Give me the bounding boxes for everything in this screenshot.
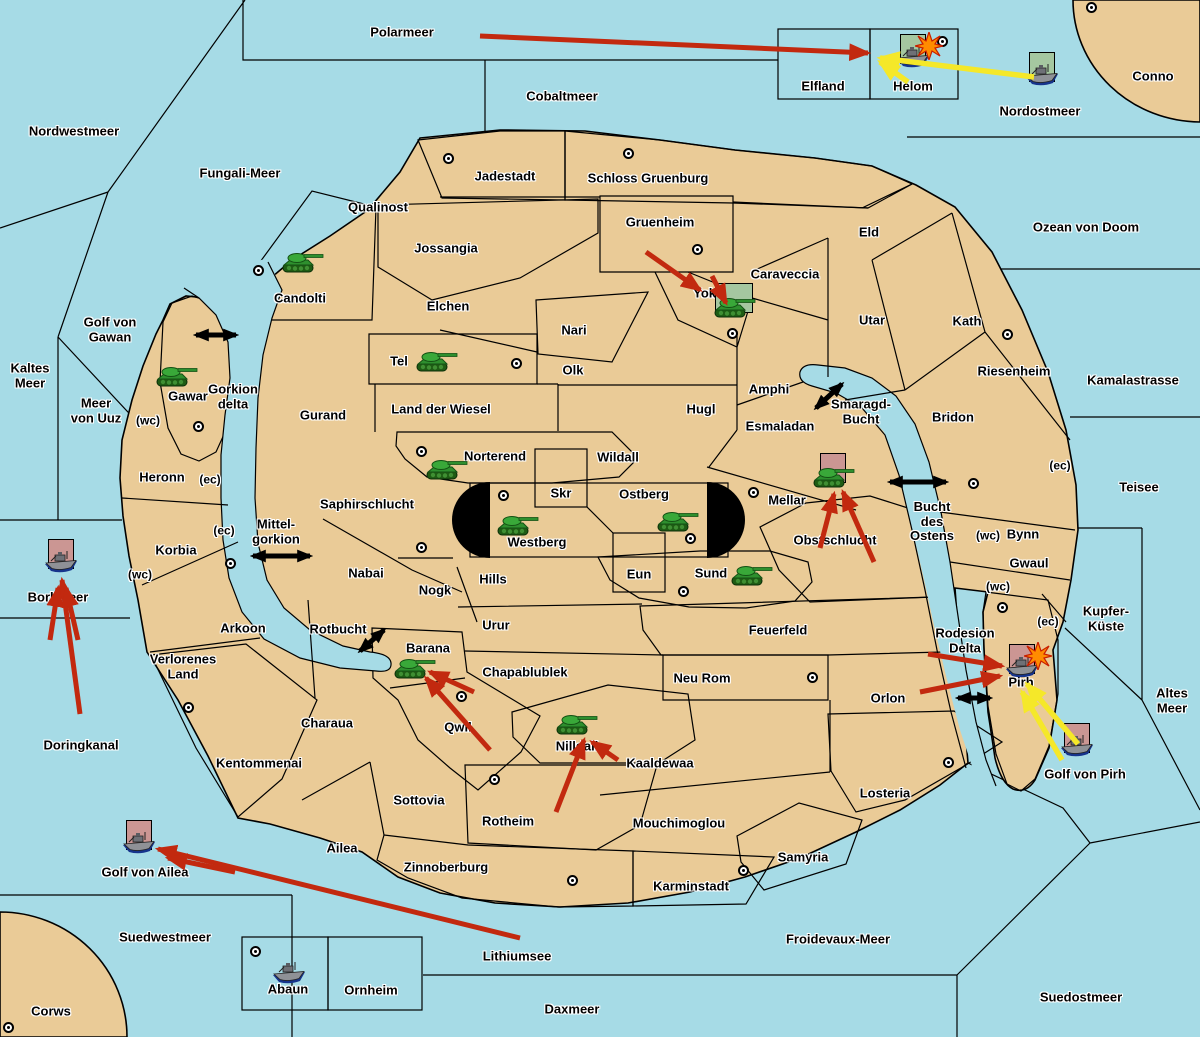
army-dot [727,328,738,339]
tank-icon [729,562,773,588]
army-dot [416,446,427,457]
tank-icon [280,249,324,275]
army-dot [225,558,236,569]
army-dot [968,478,979,489]
ship-icon [1059,733,1095,759]
army-dot [678,586,689,597]
army-dot [567,875,578,886]
ship-icon [1024,62,1060,88]
map-geometry [0,0,1200,1037]
army-dot [3,1022,14,1033]
army-dot [738,865,749,876]
tank-icon [414,348,458,374]
tank-icon [655,508,699,534]
game-map: PolarmeerCobaltmeerNordwestmeerFungali-M… [0,0,1200,1037]
army-dot [692,244,703,255]
tank-icon [495,512,539,538]
tank-icon [554,711,598,737]
tank-icon [424,456,468,482]
explosion-icon [1024,642,1052,670]
army-dot [489,774,500,785]
tank-icon [392,655,436,681]
army-dot [456,691,467,702]
army-dot [1002,329,1013,340]
army-dot [685,533,696,544]
army-dot [183,702,194,713]
army-dot [253,265,264,276]
army-dot [443,153,454,164]
army-dot [416,542,427,553]
army-dot [1086,2,1097,13]
army-dot [250,946,261,957]
ship-icon [43,549,79,575]
tank-icon [154,363,198,389]
tank-icon [712,294,756,320]
army-dot [943,757,954,768]
ship-icon [121,830,157,856]
ship-icon [271,960,307,986]
army-dot [748,487,759,498]
army-dot [997,602,1008,613]
army-dot [193,421,204,432]
army-dot [623,148,634,159]
army-dot [498,490,509,501]
explosion-icon [915,32,943,60]
tank-icon [811,464,855,490]
army-dot [511,358,522,369]
army-dot [807,672,818,683]
